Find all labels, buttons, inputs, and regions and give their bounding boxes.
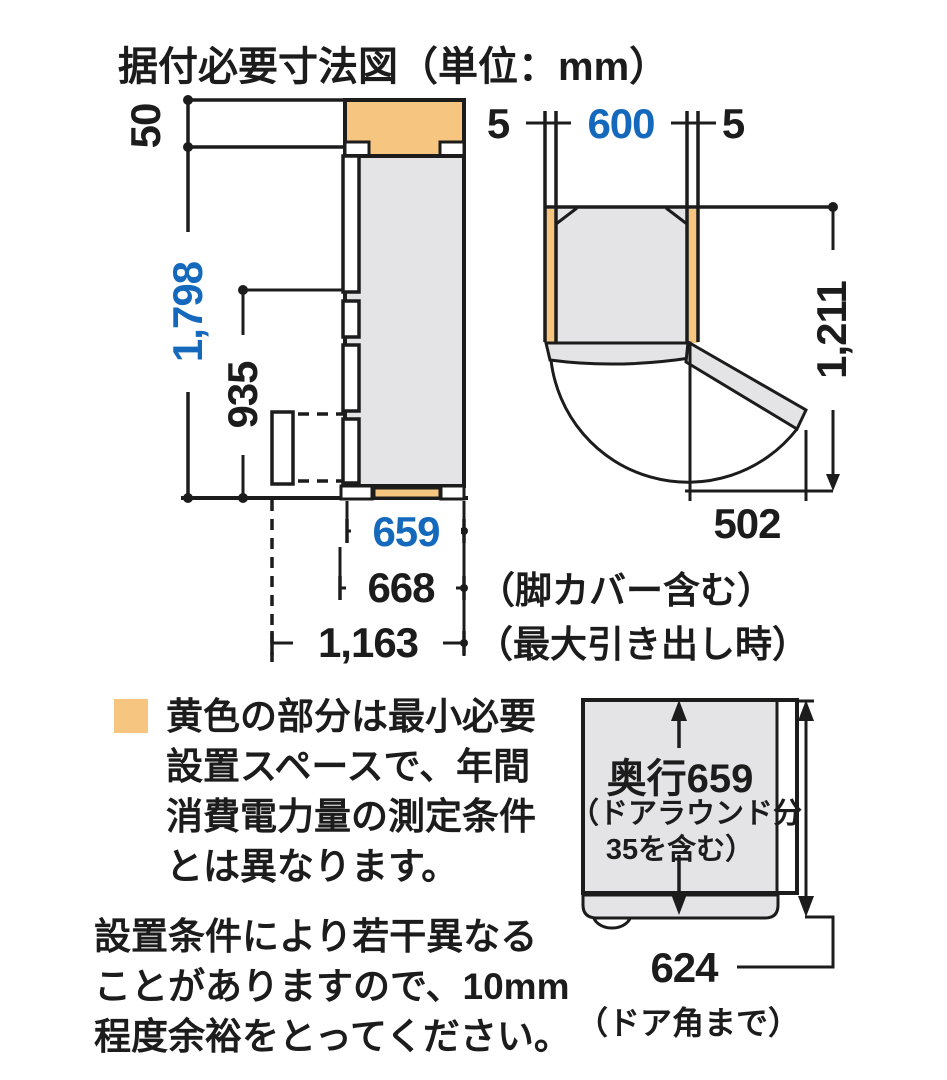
dim-1211-arrowhead [826, 474, 840, 491]
caution-line-3: 程度余裕をとってください。 [94, 1012, 571, 1062]
front-foot [341, 486, 372, 499]
legend-line-3: 消費電力量の測定条件 [166, 792, 536, 842]
caution-line-2: ことがありますので、10mm [94, 962, 569, 1012]
dim-left-clearance-label: 5 [468, 100, 528, 148]
page-title: 据付必要寸法図（単位：mm） [118, 34, 669, 92]
base-clearance-strip [374, 488, 440, 498]
note-door-corner: （ドア角まで） [576, 998, 796, 1044]
caution-line-1: 設置条件により若干異なる [94, 912, 537, 962]
legend-line-2: 設置スペースで、年間 [166, 742, 530, 792]
dim-depth-legcover-label: 668 [346, 565, 456, 611]
dim-door-corner-label: 624 [614, 944, 754, 992]
legend-yellow-swatch [114, 699, 148, 733]
dim-depth-body-label: 659 [351, 509, 461, 555]
rear-foot [441, 486, 464, 499]
dim-depth-door-open-label: 1,211 [808, 250, 856, 410]
note-leg-cover: （脚カバー含む） [478, 566, 774, 616]
door-closed-top [546, 343, 690, 364]
open-drawer-front [272, 412, 293, 484]
dim-lower-section-label: 935 [219, 335, 267, 455]
dim-depth-maxdrawer-label: 1,163 [293, 620, 443, 666]
installation-dimension-diagram: 据付必要寸法図（単位：mm） 50 1,798 935 659 668 1,16… [0, 0, 947, 1080]
dim-height-label: 1,798 [164, 232, 212, 392]
note-max-drawer: （最大引き出し時） [476, 620, 809, 670]
door-swing-arc [551, 360, 797, 482]
door-front-panels [343, 156, 359, 483]
legend-line-1: 黄色の部分は最小必要 [166, 692, 536, 742]
door-open-top [686, 342, 806, 429]
dim-width-label: 600 [571, 100, 671, 148]
fridge-body-top [556, 207, 687, 344]
dim-door-swing-label: 502 [682, 501, 812, 547]
fridge-body-side [345, 156, 464, 486]
dim-right-clearance-label: 5 [703, 100, 763, 148]
depth-label-sub2: 35を含む） [570, 826, 790, 868]
legend-line-4: とは異なります。 [166, 842, 458, 892]
dim-top-clearance-label: 50 [122, 86, 170, 166]
top-view-diagram [526, 111, 840, 534]
